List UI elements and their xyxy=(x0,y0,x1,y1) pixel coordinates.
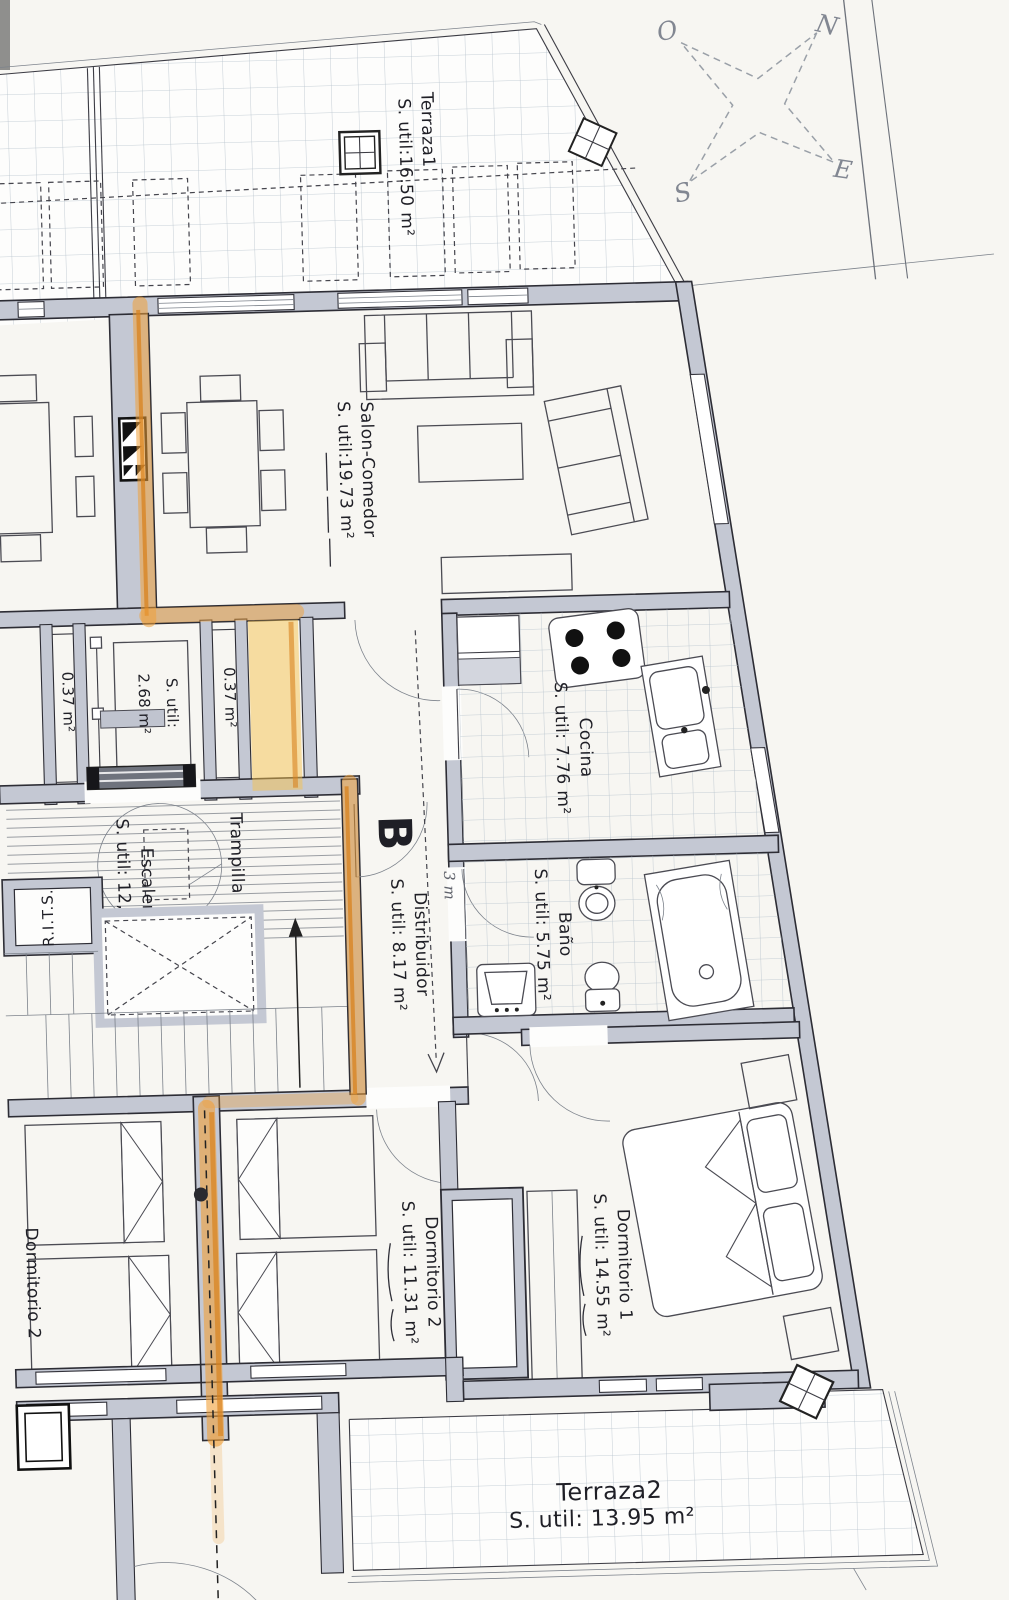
distribuidor-area: S. util: 8.17 m² xyxy=(386,878,410,1011)
cocina-zone: Cocina S. util: 7.76 m² xyxy=(442,604,779,862)
dorm1-bed xyxy=(621,1100,825,1318)
rits-closet: R.I.T.S. xyxy=(2,877,104,956)
bidet xyxy=(585,962,620,1012)
section-window-symbol xyxy=(17,1404,71,1469)
cocina-name: Cocina xyxy=(575,717,597,777)
bano-area: S. util: 5.75 m² xyxy=(530,868,554,1001)
dorm1-area: S. util: 14.55 m² xyxy=(589,1193,613,1337)
vestibule-area-1: S. util: xyxy=(162,678,181,729)
shaft-left-area: 0.37 m² xyxy=(58,671,78,732)
terraza2-name: Terraza2 xyxy=(555,1476,663,1507)
bano-name: Baño xyxy=(554,912,575,957)
stair-void xyxy=(97,909,262,1023)
trampilla-label: Trampilla xyxy=(225,812,247,894)
pantry-closet xyxy=(457,615,521,685)
dorm2-name: Dormitorio 2 xyxy=(421,1216,444,1328)
shaft-right-area: 0.37 m² xyxy=(220,667,240,728)
dorm1-name: Dormitorio 1 xyxy=(612,1209,635,1321)
dorm2-area: S. util: 11.31 m² xyxy=(397,1201,421,1345)
section-letter: B xyxy=(367,815,422,852)
floor-plan-drawing: Terraza1 S. util:16.50 m² N O S E xyxy=(0,0,1009,1600)
terraza1-area: S. util:16.50 m² xyxy=(393,98,417,237)
scan-artifact xyxy=(0,0,10,70)
stove xyxy=(548,607,646,688)
salon-area: S. util:19.73 m² xyxy=(333,401,357,540)
vestibule-area-2: 2.68 m² xyxy=(134,673,154,734)
handwritten-note: 3 m xyxy=(440,871,459,900)
floor-plan-page: Terraza1 S. util:16.50 m² N O S E xyxy=(0,0,1009,1600)
bano-zone: Baño S. util: 5.75 m² xyxy=(449,852,795,1034)
wall-dorm2-hall xyxy=(438,1101,458,1201)
cocina-area: S. util: 7.76 m² xyxy=(550,682,574,815)
terraza2-area: S. util: 13.95 m² xyxy=(509,1504,696,1534)
wardrobe-dorm2 xyxy=(441,1188,528,1380)
entry-door xyxy=(87,765,196,790)
rits-label: R.I.T.S. xyxy=(38,888,58,947)
neighbor-dorm2-name: Dormitorio 2 xyxy=(21,1227,44,1339)
washbasin xyxy=(477,963,536,1017)
distribuidor-name: Distribuidor xyxy=(410,892,433,997)
skylight-symbol xyxy=(339,131,380,174)
terraza1-name: Terraza1 xyxy=(416,91,438,168)
salon-name: Salon-Comedor xyxy=(356,401,380,537)
